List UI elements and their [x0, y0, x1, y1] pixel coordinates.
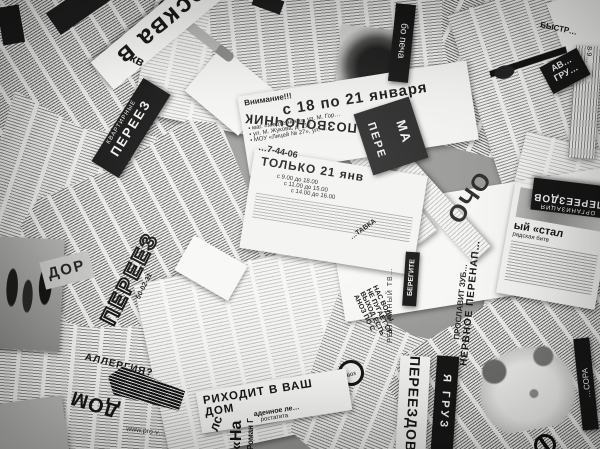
dog-sketch-icon [471, 338, 582, 438]
roman-fragment: Роман Г [246, 406, 255, 449]
pereezdov-vertical-strip: ПЕРЕЕЗДОВ [396, 355, 431, 449]
beregite-text: БЕРЕГИТЕ [406, 252, 417, 304]
pere-ma-col2: МА [393, 118, 415, 146]
na-fragment: «На [228, 406, 246, 449]
pecha-text: бо печа [393, 4, 412, 79]
roman-na-vertical: «На Роман Г [228, 406, 276, 449]
pereezdov-vertical-text: ПЕРЕЕЗДОВ [403, 356, 424, 449]
ya-gruz-text: Я ГРУЗ [436, 356, 454, 449]
gray-scrap [0, 395, 70, 449]
pere-ma-col1: ПЕРЕ [365, 121, 388, 161]
dor-fragment: ДОР [46, 257, 87, 283]
voz-logo-text: воз [346, 371, 356, 379]
newspaper-collage-photo: осква в кв КВАРТИРНЫЕ ПЕРЕЕЗ Внимание!!!… [0, 0, 600, 449]
street-figures-photo-icon [0, 236, 65, 351]
